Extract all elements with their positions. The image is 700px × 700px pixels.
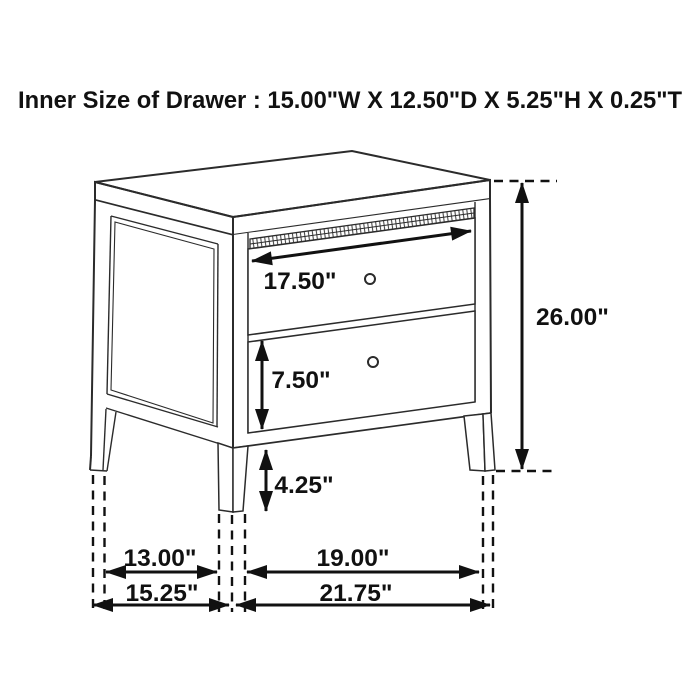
- front-right-leg-front-face: [464, 414, 485, 471]
- dim-bottom-drawer-height-label: 7.50": [271, 367, 330, 394]
- back-left-leg-foot: [90, 470, 107, 471]
- page-title: Inner Size of Drawer : 15.00"W X 12.50"D…: [18, 87, 682, 114]
- front-right-leg: [464, 413, 495, 471]
- back-left-leg-outer-edge: [90, 456, 91, 470]
- dim-overall-width: 21.75": [236, 580, 490, 607]
- front-right-leg-side-face: [483, 413, 495, 471]
- front-left-leg: [218, 443, 248, 512]
- dim-overall-width-label: 21.75": [320, 580, 393, 607]
- front-face: [233, 180, 491, 448]
- dim-inner-depth-label: 13.00": [124, 545, 197, 572]
- dimension-diagram: Inner Size of Drawer : 15.00"W X 12.50"D…: [0, 0, 700, 700]
- dim-inner-width: 19.00": [247, 545, 479, 572]
- nightstand: [90, 151, 495, 512]
- dim-overall-depth: 15.25": [93, 580, 229, 607]
- nightstand-dimension-drawing: Inner Size of Drawer : 15.00"W X 12.50"D…: [0, 0, 700, 700]
- dim-top-drawer-width-label: 17.50": [264, 268, 337, 295]
- side-front-stile-inner-edge: [217, 244, 218, 427]
- front-right-corner-edge: [490, 180, 491, 413]
- front-left-leg-side-face: [218, 443, 233, 512]
- back-left-leg: [90, 409, 116, 471]
- dim-inner-width-label: 19.00": [317, 545, 390, 572]
- dim-leg-height-label: 4.25": [274, 472, 333, 499]
- dim-overall-height-label: 26.00": [536, 304, 609, 331]
- dim-overall-height: 26.00": [522, 183, 609, 469]
- bottom-drawer-knob: [368, 357, 378, 367]
- dim-inner-depth: 13.00": [106, 545, 217, 572]
- back-left-leg-inner-edge: [103, 409, 106, 470]
- dim-leg-height: 4.25": [266, 450, 334, 511]
- front-left-leg-front-face: [233, 446, 248, 512]
- dim-overall-depth-label: 15.25": [126, 580, 199, 607]
- side-panel: [91, 182, 233, 456]
- back-left-leg-corner-edge: [107, 412, 116, 471]
- top-drawer-knob: [365, 274, 375, 284]
